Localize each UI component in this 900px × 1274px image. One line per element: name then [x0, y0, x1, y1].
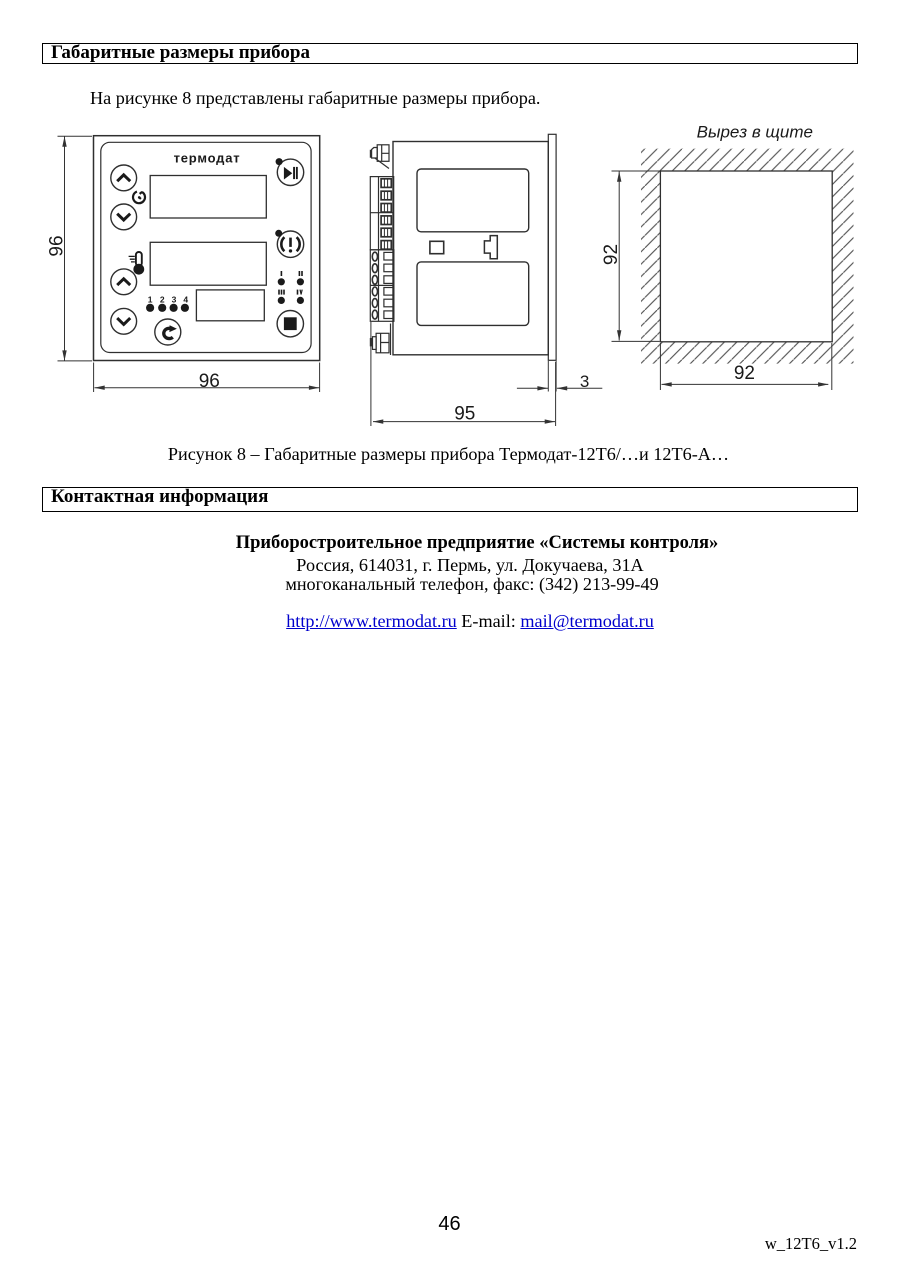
svg-text:3: 3	[172, 295, 177, 305]
svg-text:2: 2	[160, 295, 165, 305]
svg-text:92: 92	[734, 363, 755, 384]
svg-text:92: 92	[601, 244, 622, 265]
svg-text:Вырез в щите: Вырез в щите	[697, 123, 813, 142]
svg-text:96: 96	[46, 235, 67, 256]
svg-text:4: 4	[183, 295, 188, 305]
svg-text:96: 96	[199, 371, 220, 392]
svg-text:термодат: термодат	[174, 151, 241, 166]
svg-text:3: 3	[580, 372, 589, 391]
svg-text:1: 1	[148, 295, 153, 305]
svg-text:95: 95	[454, 403, 475, 424]
